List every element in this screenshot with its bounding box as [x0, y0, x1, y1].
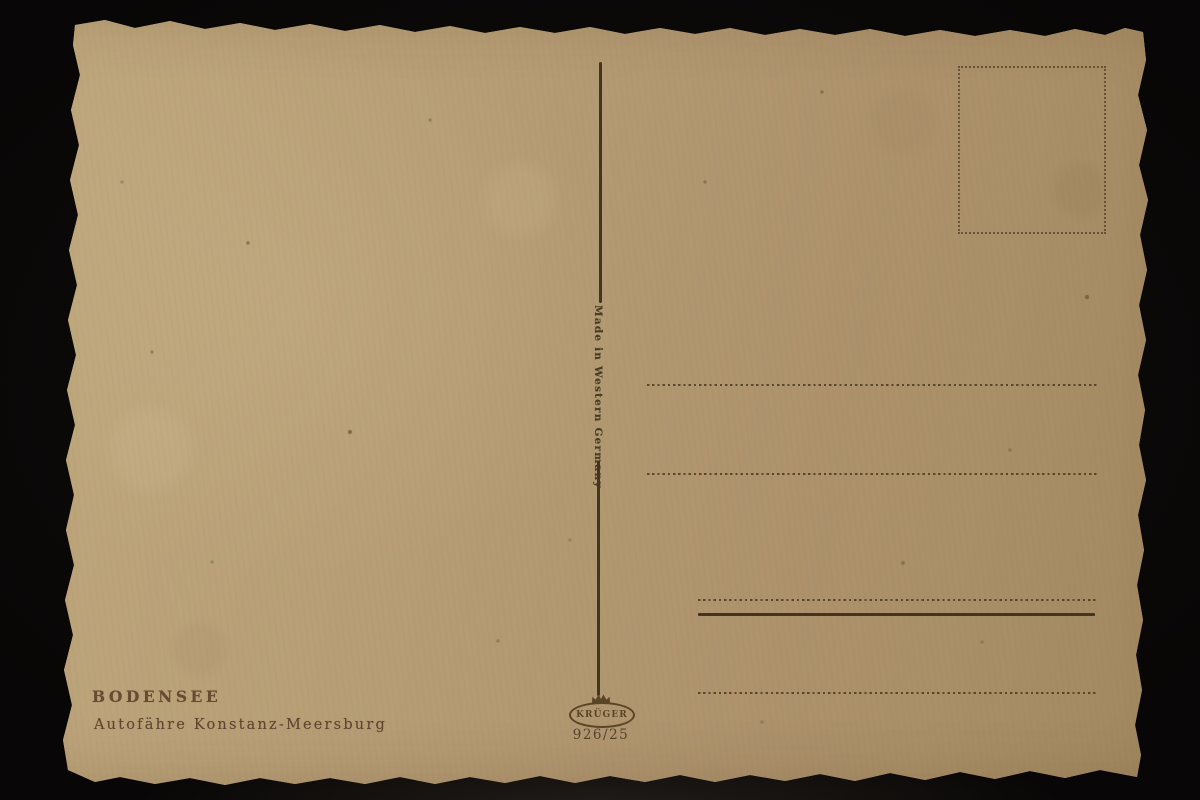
divider-line-bottom [597, 461, 600, 696]
address-line-3 [698, 599, 1097, 601]
publisher-name: KRÜGER [576, 710, 628, 720]
made-in-text: Made in Western Germany [592, 305, 604, 459]
caption-subtitle: Autofähre Konstanz-Meersburg [94, 717, 387, 733]
address-line-3-underline [698, 613, 1095, 616]
address-line-1 [647, 384, 1097, 386]
publisher-series-number: 926/25 [561, 727, 641, 743]
publisher-logo: KRÜGER [569, 702, 635, 728]
photo-background: Made in Western Germany KRÜGER 926/25 BO… [0, 0, 1200, 800]
caption-title: BODENSEE [92, 687, 221, 706]
address-line-2 [647, 473, 1097, 475]
stamp-box [958, 66, 1106, 234]
divider-line-top [599, 62, 602, 303]
address-line-4 [698, 692, 1097, 694]
postcard: Made in Western Germany KRÜGER 926/25 BO… [0, 0, 1200, 800]
